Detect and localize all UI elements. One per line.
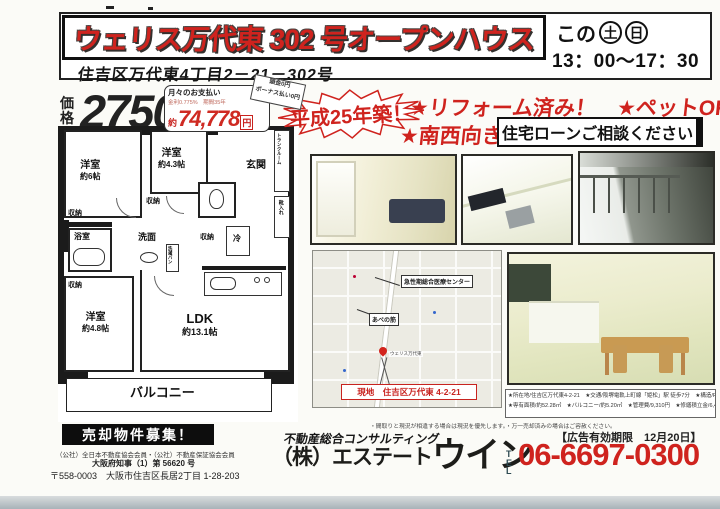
license-number: 大阪府知事（1）第 56620 号 bbox=[92, 458, 195, 469]
map-dot bbox=[343, 369, 346, 372]
scan-artifact bbox=[106, 6, 114, 9]
phone-number: 06-6697-0300 bbox=[518, 437, 699, 473]
washroom-label: 洗面 bbox=[138, 232, 156, 242]
floor-plan: 洋室 約6帖 洋室 約4.3帖 洋室 約4.8帖 LDK 約13.1帖 バルコニ… bbox=[58, 126, 298, 422]
entrance-label: 玄関 bbox=[246, 160, 266, 172]
company-name: （株）エステート ウイン bbox=[272, 441, 531, 471]
property-details-line1: ★所在地/住吉区万代東4-2-21 ★交通/阪堺電軌上町線「姫松」駅 徒歩7分 … bbox=[508, 391, 713, 401]
bedroom-2-label: 洋室 bbox=[158, 148, 185, 160]
bedroom-2-size: 約4.3帖 bbox=[158, 160, 185, 169]
title-banner: ウェリス万代東 302 号オープンハウス bbox=[62, 15, 546, 60]
storage-label: 収納 bbox=[68, 210, 82, 218]
flyer-page: ウェリス万代東 302 号オープンハウス 住吉区万代東4丁目2－21－302号 … bbox=[0, 0, 720, 509]
event-days: この 土 日 bbox=[556, 18, 648, 47]
map-callout-hospital: 急性期総合医療センター bbox=[401, 275, 473, 288]
dining-room-photo bbox=[507, 252, 715, 385]
saturday-circle-icon: 土 bbox=[599, 21, 622, 44]
map-pin-label: ウェリス万代東 bbox=[389, 351, 423, 357]
loan-consult-box: 住宅ローンご相談ください bbox=[497, 117, 703, 147]
railing-shape bbox=[580, 175, 680, 213]
door-arc bbox=[166, 196, 184, 214]
storage-label: 収納 bbox=[146, 198, 160, 206]
kitchen-sink bbox=[210, 277, 236, 290]
company-name-main: ウイン bbox=[432, 441, 531, 471]
event-hours: 13：00～17：30 bbox=[552, 46, 699, 73]
monthly-unit: 円 bbox=[240, 115, 253, 130]
wall bbox=[64, 222, 112, 227]
ldk-label: LDK bbox=[182, 312, 218, 327]
map-dot bbox=[353, 275, 356, 278]
table-leg bbox=[605, 353, 609, 375]
company-address: 〒558-0003 大阪市住吉区長居2丁目 1-28-203 bbox=[50, 469, 240, 482]
bedroom-1-size: 約6帖 bbox=[80, 172, 100, 181]
window-shape bbox=[316, 161, 356, 237]
counter-shape bbox=[529, 301, 599, 343]
tel-label: TEL bbox=[506, 450, 516, 476]
bathroom-label: 浴室 bbox=[74, 232, 90, 241]
disclaimer-text: ・間取りと現況が相違する場合は現況を優先します。・万一売却済みの場合はご容赦くだ… bbox=[370, 421, 568, 430]
bedroom-3-size: 約4.8帖 bbox=[82, 324, 109, 333]
chair-shape bbox=[659, 345, 673, 373]
living-room-photo bbox=[310, 154, 457, 245]
storage-label: 収納 bbox=[200, 234, 214, 242]
shoe-label: 靴入れ bbox=[277, 200, 283, 215]
property-address: 住吉区万代東4丁目2－21－302号 bbox=[77, 61, 336, 85]
property-details-box: ★所在地/住吉区万代東4-2-21 ★交通/阪堺電軌上町線「姫松」駅 徒歩7分 … bbox=[505, 389, 716, 418]
property-details-line2: ★専有面積/約52.28㎡ ★バルコニー/約5.20㎡ ★管理費/9,310円 … bbox=[508, 401, 713, 411]
balcony-photo bbox=[578, 151, 715, 245]
chair-shape bbox=[613, 345, 627, 373]
monthly-amount: 74,778 bbox=[178, 106, 239, 132]
window-shape bbox=[509, 264, 551, 302]
scan-artifact bbox=[148, 7, 153, 10]
fridge-label: 冷 bbox=[233, 234, 241, 243]
map-dot bbox=[433, 311, 436, 314]
location-map: 急性期総合医療センター あべの筋 ウェリス万代東 現地 住吉区万代東 4-2-2… bbox=[312, 250, 502, 408]
map-callout-street: あべの筋 bbox=[369, 313, 399, 326]
event-day-prefix: この bbox=[556, 18, 596, 47]
kitchen-photo bbox=[461, 154, 573, 245]
laundry-label: 洗濯パン bbox=[168, 246, 173, 264]
bathtub bbox=[73, 248, 105, 266]
sale-recruit-banner: 売却物件募集！ bbox=[62, 424, 214, 445]
stove-burner bbox=[254, 277, 260, 283]
ldk-size: 約13.1帖 bbox=[182, 327, 218, 337]
map-site-label: 現地 住吉区万代東 4-2-21 bbox=[341, 384, 477, 400]
bedroom-3-label: 洋室 bbox=[82, 312, 109, 324]
bedroom-1-label: 洋室 bbox=[80, 160, 100, 172]
sunday-circle-icon: 日 bbox=[625, 21, 648, 44]
storage-label: 収納 bbox=[68, 282, 82, 290]
eave-shape bbox=[580, 153, 713, 167]
toilet-fixture bbox=[209, 189, 224, 209]
company-name-prefix: （株）エステート bbox=[272, 441, 432, 471]
sofa-shape bbox=[389, 199, 445, 223]
stove-burner bbox=[264, 277, 270, 283]
price-label: 価 格 bbox=[60, 96, 74, 127]
scan-edge-strip bbox=[0, 496, 720, 509]
balcony-label: バルコニー bbox=[130, 386, 195, 401]
page-title: ウェリス万代東 302 号オープンハウス bbox=[72, 18, 535, 58]
approx-label: 約 bbox=[168, 116, 177, 129]
table-leg bbox=[681, 353, 685, 375]
wash-basin bbox=[140, 252, 158, 263]
